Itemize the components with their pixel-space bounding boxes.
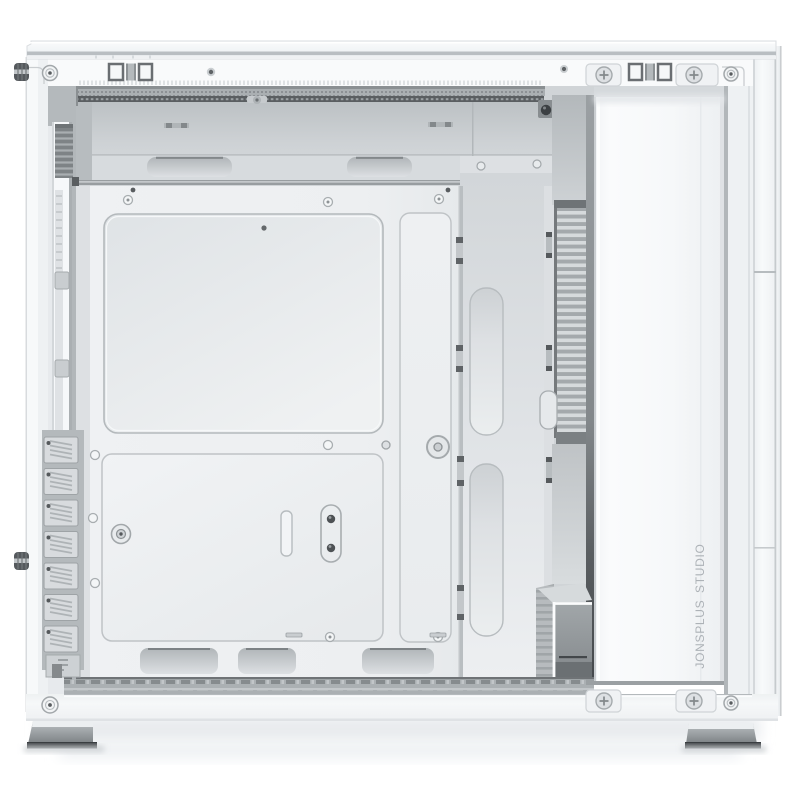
svg-text:JONSPLUS STUDIO: JONSPLUS STUDIO bbox=[693, 543, 707, 668]
